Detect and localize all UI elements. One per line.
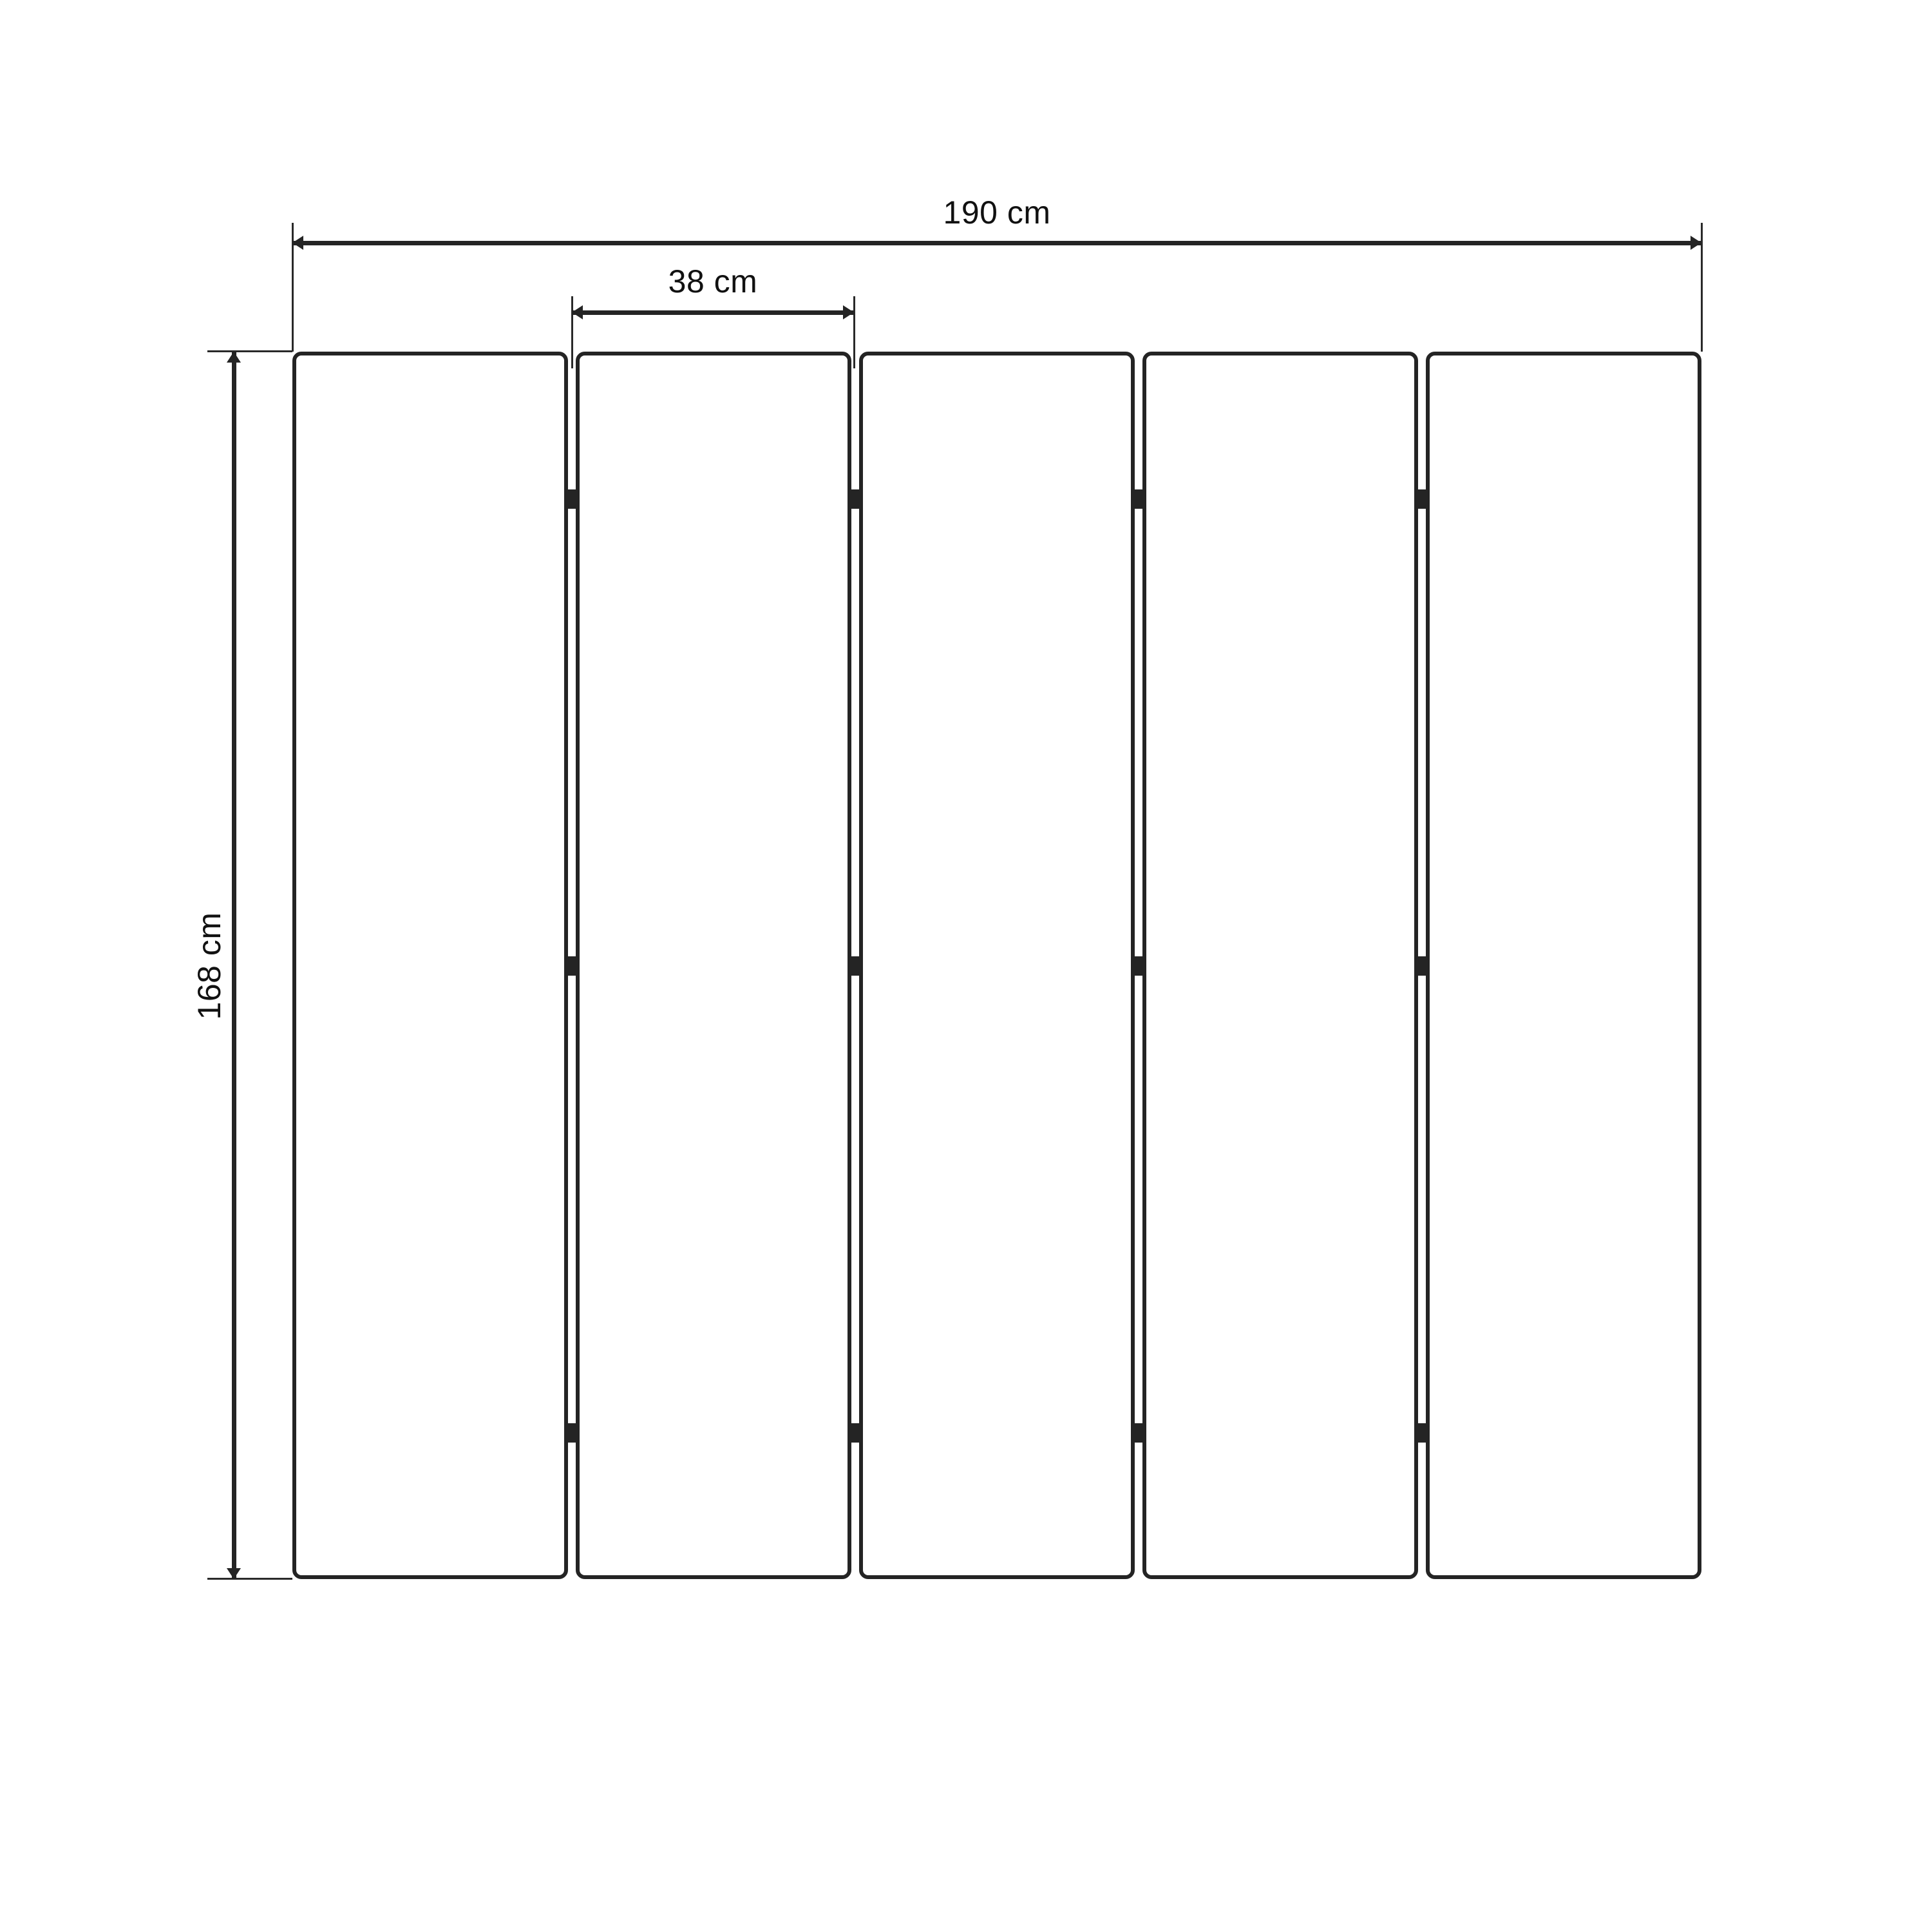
panel-1 bbox=[292, 352, 568, 1579]
panel-width-arrow-right-icon bbox=[843, 305, 854, 319]
hinge-mark bbox=[1417, 489, 1426, 509]
panel-2 bbox=[576, 352, 851, 1579]
diagram-canvas: 190 cm 38 cm 168 cm bbox=[0, 0, 1932, 1932]
height-extension-bottom bbox=[207, 1578, 292, 1580]
panel-width-arrow-left-icon bbox=[572, 305, 583, 319]
panel-3 bbox=[859, 352, 1135, 1579]
panel-width-label: 38 cm bbox=[552, 262, 874, 301]
total-width-label: 190 cm bbox=[804, 193, 1190, 232]
hinge-mark bbox=[567, 489, 576, 509]
total-width-arrow-right-icon bbox=[1690, 236, 1701, 250]
hinge-mark bbox=[1134, 1423, 1143, 1443]
hinge-mark bbox=[1417, 1423, 1426, 1443]
height-arrow-top-icon bbox=[227, 352, 241, 363]
panel-4 bbox=[1142, 352, 1418, 1579]
hinge-mark bbox=[1417, 956, 1426, 976]
hinge-mark bbox=[567, 956, 576, 976]
total-width-arrow-left-icon bbox=[292, 236, 303, 250]
height-line bbox=[232, 352, 236, 1579]
hinge-mark bbox=[1134, 489, 1143, 509]
hinge-mark bbox=[1134, 956, 1143, 976]
hinge-mark bbox=[851, 489, 860, 509]
hinge-mark bbox=[567, 1423, 576, 1443]
height-label: 168 cm bbox=[190, 837, 229, 1095]
panel-5 bbox=[1426, 352, 1701, 1579]
total-width-line bbox=[292, 241, 1701, 245]
height-extension-top bbox=[207, 350, 292, 352]
height-arrow-bottom-icon bbox=[227, 1568, 241, 1579]
hinge-mark bbox=[851, 956, 860, 976]
panel-width-line bbox=[572, 310, 854, 315]
hinge-mark bbox=[851, 1423, 860, 1443]
